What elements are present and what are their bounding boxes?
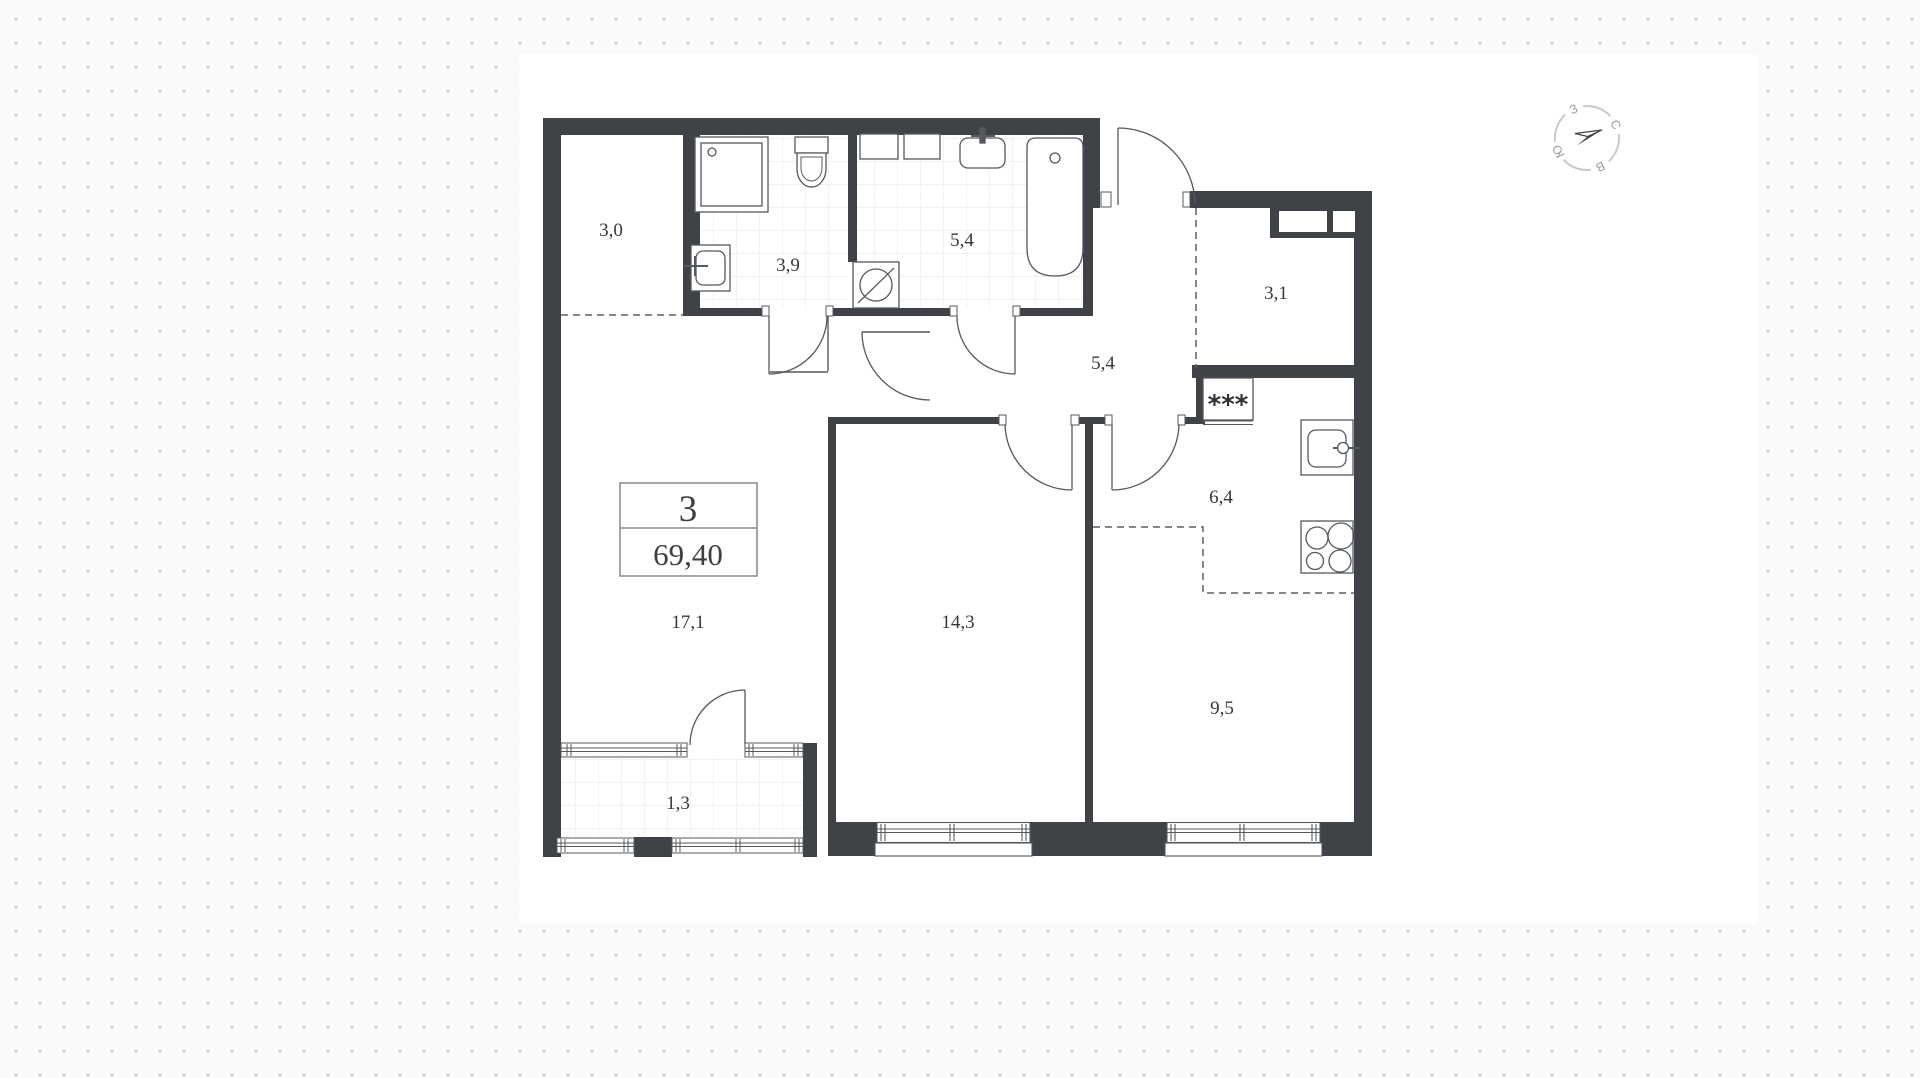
unit-info-box: 3 69,40	[620, 483, 757, 576]
sink-icon	[684, 245, 730, 291]
compass-west-label: З	[1567, 102, 1580, 118]
bathroom-1-door	[769, 316, 827, 374]
balcony-inner-window	[561, 743, 803, 757]
room-label-balcony: 1,3	[666, 793, 690, 814]
room-label-wardrobe: 3,0	[599, 220, 623, 241]
toilet-icon	[795, 137, 828, 187]
room-window	[1165, 823, 1322, 857]
stove-icon	[1301, 521, 1354, 573]
compass-south-label: Ю	[1549, 142, 1567, 160]
washing-machine-icon	[853, 262, 899, 308]
compass-east-label: В	[1594, 158, 1607, 174]
kitchen-sink-icon	[1301, 420, 1360, 475]
floorplan-page: { "plan": { "unit": { "rooms": "3", "are…	[0, 0, 1920, 1078]
unit-total-area: 69,40	[653, 537, 723, 572]
vent-niche	[860, 134, 898, 159]
bedroom-window	[875, 823, 1032, 857]
compass: С В Ю З	[1549, 102, 1624, 175]
room-label-bedroom: 14,3	[941, 612, 974, 633]
balcony-door	[690, 690, 745, 745]
room-label-room: 9,5	[1210, 698, 1234, 719]
vent-stars-label: ***	[1208, 390, 1249, 420]
kitchen-door	[1112, 423, 1179, 490]
room-label-hallway: 5,4	[1091, 353, 1115, 374]
shower-tray-icon	[695, 137, 768, 212]
room-label-living: 17,1	[671, 612, 704, 633]
compass-needle-icon	[1575, 130, 1602, 146]
balcony-glazing	[557, 838, 803, 853]
living-room-door-arc	[862, 332, 930, 400]
hall-opening-lines	[770, 316, 930, 372]
shaft-niches	[1279, 211, 1355, 232]
compass-north-label: С	[1607, 118, 1624, 132]
room-label-bathroom-2: 5,4	[950, 230, 974, 251]
room-label-kitchen: 6,4	[1209, 487, 1233, 508]
bathtub-icon	[1027, 138, 1083, 276]
room-label-storage: 3,1	[1264, 283, 1288, 304]
bathroom-2-door	[957, 316, 1015, 374]
vent-niche	[904, 134, 940, 159]
room-label-bathroom-1: 3,9	[776, 255, 800, 276]
bedroom-door	[1005, 423, 1072, 490]
floorplan-svg: 3,0 3,9 5,4 3,1 5,4 6,4 17,1 14,3 9,5 1,…	[0, 0, 1920, 1078]
unit-rooms-count: 3	[679, 489, 698, 530]
